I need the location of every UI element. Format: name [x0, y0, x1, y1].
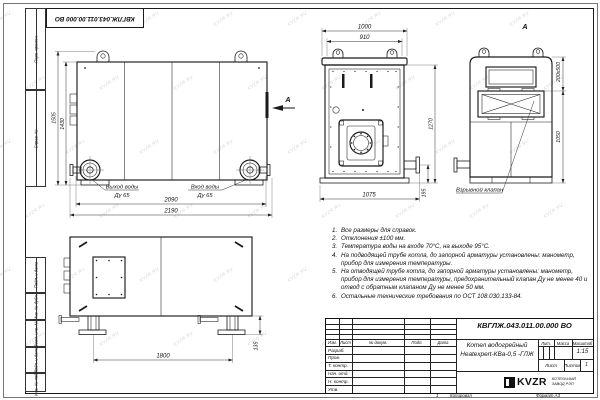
outlet-callout: Выход воды Ду 65: [91, 179, 139, 199]
note-item: 3.Температура воды на входе 70°С, на вых…: [332, 243, 588, 251]
inlet-size: Ду 65: [196, 193, 213, 199]
rear-pipe: [457, 161, 470, 168]
lit-label: Лит.: [538, 341, 554, 346]
burner-door: [339, 120, 383, 166]
technical-notes: 1.Все размеры для справок. 2.Отклонения …: [332, 227, 588, 301]
dim-height-outer: 1505: [52, 112, 58, 124]
col-list: Лист: [339, 340, 352, 345]
row-prov: Пров.: [328, 355, 340, 360]
col-izm: Изм.: [326, 340, 339, 345]
mass-label: Масса: [554, 341, 572, 346]
row-razrab: Разраб.: [328, 348, 345, 353]
dim-pipe: 195: [422, 189, 428, 198]
lifting-lug-left: [333, 49, 343, 58]
col-data: Дата: [430, 340, 456, 345]
sheets-label: Листов: [564, 363, 580, 368]
side-view-outline: [70, 51, 269, 185]
view-a-title: А: [521, 22, 527, 31]
note-item: 5.На отводящей трубе котла, до запорной …: [332, 268, 588, 293]
rear-view: 1800 135: [48, 228, 300, 392]
row-utv: Утв.: [328, 387, 338, 392]
note-item: 4.На подводящей трубе котла, до запорной…: [332, 252, 588, 268]
dim-height: 1050: [556, 131, 562, 143]
front-view-dimensions: 1000 910 1270 195 1075: [320, 25, 438, 203]
outlet-label: Выход воды: [106, 185, 139, 191]
dim-feet-span: 1800: [156, 354, 170, 360]
sheets-value: 1: [580, 362, 593, 368]
view-a-arrow: А: [272, 95, 295, 111]
rear-view-dimensions: 1800 135: [94, 316, 264, 363]
doc-number-top-text: КВГЛЖ.043.011.00.000 ВО: [55, 15, 135, 22]
base-plate: [470, 177, 552, 183]
lifting-lug-left: [479, 48, 489, 57]
explosion-valve-label: Взрывной клапан: [456, 187, 504, 194]
lifting-lug-left: [97, 51, 109, 62]
outlet-size: Ду 65: [113, 193, 130, 199]
col-docum: № докум.: [352, 340, 404, 345]
dim-width-outer: 2190: [163, 209, 178, 215]
kvzr-logo-text: KVZR: [517, 376, 547, 388]
col-podp: Подп.: [404, 340, 430, 345]
burner-flange-bolts: [351, 133, 371, 153]
stamp-sprav-no: Справ. №: [25, 90, 46, 187]
lifting-lug-right: [235, 51, 247, 62]
stamp-perv-primen: Перв. примен.: [25, 8, 46, 90]
drawing-sheet: KVZR.RUKVZR.RUKVZR.RUKVZR.RUKVZR.RUKVZR.…: [0, 0, 600, 400]
doc-number-top-box: КВГЛЖ.043.011.00.000 ВО: [46, 8, 144, 28]
scale-label: Масштаб: [572, 341, 593, 346]
stamp-vzam-inv: Взам. инв. №: [25, 320, 46, 347]
view-a: А: [452, 12, 592, 212]
view-a-outline: [454, 48, 552, 183]
note-item: 1.Все размеры для справок.: [332, 227, 588, 235]
doc-number: КВГЛЖ.043.011.00.000 ВО: [456, 321, 593, 330]
view-a-arrow-label: А: [284, 95, 290, 104]
dim-height: 1270: [429, 118, 435, 130]
side-view: 1505 1430 2090 2190 Выход воды Ду 65 Вхо…: [45, 38, 300, 230]
view-a-dimensions: 200x500 1050: [544, 57, 566, 183]
dim-top: 1000: [358, 25, 372, 31]
scale-value: 1:15: [572, 349, 593, 355]
rear-pipe-flange: [454, 158, 457, 172]
row-nkontr: Н. контр.: [328, 379, 349, 384]
dim-height-inner: 1430: [60, 118, 66, 130]
lifting-lug-right: [387, 49, 397, 58]
stamp-column: Перв. примен. Справ. № Подп. и дата Инв.…: [25, 8, 46, 392]
note-item: 6.Остальные технические требования по ОС…: [332, 293, 588, 301]
dim-foot-height: 135: [254, 342, 260, 351]
inlet-callout: Вход воды Ду 65: [188, 179, 248, 199]
rear-view-outline: [59, 237, 252, 335]
manufacturer-logo: KVZR КОТЕЛЬНЫЙ ЗАВОД РЭП: [504, 374, 576, 390]
stamp-inv-podl: Инв. № подл.: [25, 373, 46, 392]
dim-valve: 200x500: [556, 62, 562, 83]
base-plate: [320, 178, 409, 183]
front-view-outline: [320, 49, 420, 183]
title-block: КВГЛЖ.043.011.00.000 ВО Котел водогрейны…: [325, 318, 594, 394]
side-hinge-strip: [266, 92, 269, 118]
dim-top-inner: 910: [359, 35, 370, 41]
kvzr-logo-icon: [504, 377, 515, 388]
support-leg-right: [198, 316, 245, 335]
note-item: 2.Отклонения ±100 мм.: [332, 235, 588, 243]
sight-port: [333, 107, 339, 113]
kvzr-logo-caption: КОТЕЛЬНЫЙ ЗАВОД РЭП: [552, 377, 576, 386]
front-view: 1000 910 1270 195 1075: [303, 12, 453, 208]
row-nachotd: Нач. отд.: [328, 371, 349, 376]
dim-bottom: 1075: [362, 193, 376, 199]
side-view-dimensions: 1505 1430 2090 2190: [52, 52, 273, 219]
sheet-label: Лист: [538, 363, 564, 368]
explosion-valve-callout: Взрывной клапан: [456, 101, 534, 194]
lifting-lug-right: [533, 48, 543, 57]
panel-bolts: [330, 71, 399, 172]
side-pipe: [404, 161, 416, 169]
access-door: [93, 257, 125, 298]
explosion-valve: [478, 89, 544, 120]
dim-width-inner: 2090: [163, 198, 178, 204]
inlet-label: Вход воды: [191, 185, 220, 191]
door-bolts: [96, 260, 123, 296]
product-name-line1: Котел водогрейный: [456, 342, 538, 349]
support-leg-left: [59, 316, 106, 335]
stamp-podp-data-1: Подп. и дата: [25, 257, 46, 293]
row-tkontr: Т. контр.: [328, 363, 348, 368]
stamp-inv-dubl: Инв. № дубл.: [25, 293, 46, 320]
product-name-line2: Heatexpert-КВа-0,5 -ГЛЖ: [456, 351, 538, 358]
